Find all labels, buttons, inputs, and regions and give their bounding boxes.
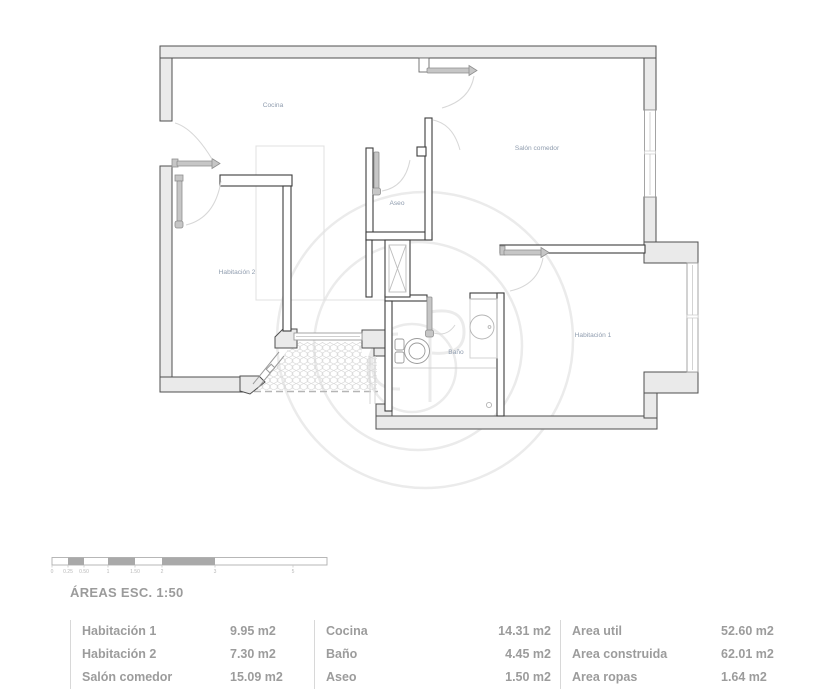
room-label-aseo: Aseo <box>389 200 404 207</box>
entrance-door-icon <box>419 58 477 108</box>
areas-table: Habitación 1 9.95 m2 Habitación 2 7.30 m… <box>70 620 800 689</box>
area-value: 9.95 m2 <box>230 620 305 643</box>
aseo-door-icon <box>373 152 411 195</box>
salon-passage-arc <box>433 120 460 150</box>
table-row: Area ropas 1.64 m2 <box>572 666 791 689</box>
cocina-door-icon <box>172 123 220 169</box>
scale-tick-025: 0.25 <box>63 569 73 575</box>
area-label: Habitación 1 <box>82 620 230 643</box>
area-value: 14.31 m2 <box>456 620 551 643</box>
window-salon <box>645 110 656 197</box>
table-row: Habitación 1 9.95 m2 <box>82 620 305 643</box>
area-label: Cocina <box>326 620 456 643</box>
scale-tick-0: 0 <box>51 569 54 575</box>
area-value: 7.30 m2 <box>230 643 305 666</box>
area-value: 52.60 m2 <box>721 620 791 643</box>
sink-icon <box>470 299 497 358</box>
room-label-salon: Salón comedor <box>515 145 560 152</box>
table-row: Area construida 62.01 m2 <box>572 643 791 666</box>
scale-tick-2: 2 <box>161 569 164 575</box>
table-row: Salón comedor 15.09 m2 <box>82 666 305 689</box>
area-value: 1.50 m2 <box>456 666 551 689</box>
scale-tick-150: 1.50 <box>130 569 140 575</box>
hab2-door-icon <box>175 175 221 228</box>
area-label: Habitación 2 <box>82 643 230 666</box>
area-value: 4.45 m2 <box>456 643 551 666</box>
bano-door-icon <box>426 297 456 337</box>
room-label-cocina: Cocina <box>263 102 284 109</box>
table-row: Baño 4.45 m2 <box>326 643 551 666</box>
drain-icon <box>486 402 491 407</box>
scale-bar: 0 0.25 0.50 1 1.50 2 3 5 <box>51 558 327 576</box>
areas-group-rooms: Habitación 1 9.95 m2 Habitación 2 7.30 m… <box>70 620 305 689</box>
table-row: Area util 52.60 m2 <box>572 620 791 643</box>
area-value: 1.64 m2 <box>721 666 791 689</box>
toilet-icon <box>395 339 430 364</box>
area-label: Area util <box>572 620 721 643</box>
scale-tick-050: 0.50 <box>79 569 89 575</box>
scale-tick-3: 3 <box>214 569 217 575</box>
area-label: Area construida <box>572 643 721 666</box>
area-label: Salón comedor <box>82 666 230 689</box>
screenshot-root: Cocina Salón comedor Aseo Habitación 2 B… <box>0 0 831 700</box>
room-label-hab1: Habitación 1 <box>575 332 612 339</box>
area-label: Aseo <box>326 666 456 689</box>
area-value: 15.09 m2 <box>230 666 305 689</box>
areas-title: ÁREAS ESC. 1:50 <box>70 585 184 600</box>
window-terrace <box>294 333 362 340</box>
table-row: Habitación 2 7.30 m2 <box>82 643 305 666</box>
room-label-hab2: Habitación 2 <box>219 269 256 276</box>
area-value: 62.01 m2 <box>721 643 791 666</box>
room-label-bano: Baño <box>448 349 464 356</box>
hab1-door-icon <box>500 246 549 291</box>
area-label: Area ropas <box>572 666 721 689</box>
laundry-shaft <box>385 240 410 297</box>
table-row: Cocina 14.31 m2 <box>326 620 551 643</box>
area-label: Baño <box>326 643 456 666</box>
table-row: Aseo 1.50 m2 <box>326 666 551 689</box>
scale-tick-1: 1 <box>107 569 110 575</box>
scale-tick-5: 5 <box>292 569 295 575</box>
areas-group-services: Cocina 14.31 m2 Baño 4.45 m2 Aseo 1.50 m… <box>314 620 551 689</box>
areas-group-totals: Area util 52.60 m2 Area construida 62.01… <box>560 620 791 689</box>
window-bay-hab1 <box>687 263 698 372</box>
